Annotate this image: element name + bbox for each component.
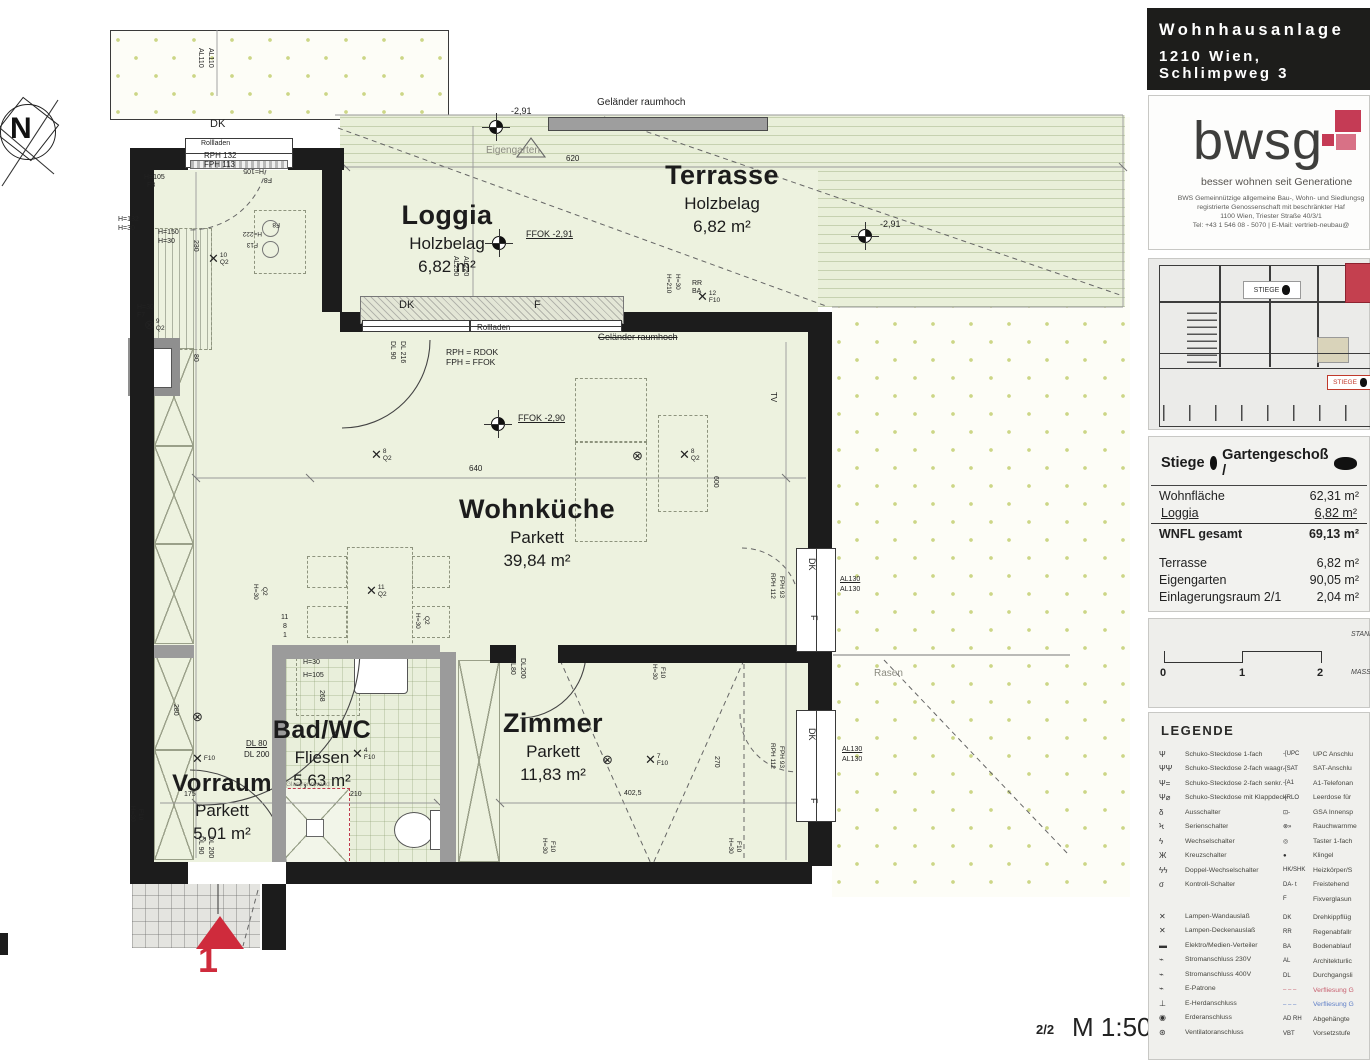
plan-annotation: 402,5 (624, 790, 642, 797)
room-material: Parkett (503, 742, 603, 762)
lamp-cross-icon: ✕7F10 (645, 753, 668, 767)
legend-symbol-icon: -[A1 (1283, 780, 1313, 786)
legend-label: Lampen-Deckenauslaß (1185, 927, 1255, 934)
scale-tick-1: 1 (1239, 667, 1245, 679)
legend-label: Rauchwarnme (1313, 823, 1357, 830)
level-marker (492, 236, 506, 250)
plan-annotation: F (809, 798, 818, 804)
legend-item: ALArchitekturlic (1283, 954, 1370, 969)
plan-annotation: H=105 (303, 672, 324, 679)
legend-symbol-icon: ϟϟ (1159, 866, 1185, 875)
legend-symbol-icon: Ψ= (1159, 779, 1185, 788)
plan-annotation: RPH = RDOK (446, 348, 498, 357)
washer-dashed (296, 658, 360, 716)
legend-label: Heizkörper/S (1313, 867, 1352, 874)
legend-symbol-icon: ● (1283, 853, 1313, 859)
plan-annotation: DL 90 (197, 836, 204, 854)
lamp-cross-icon: ✕11Q2 (366, 584, 387, 598)
lamp-cross-icon: ✕10Q2 (208, 252, 229, 266)
legend-symbol-icon: δ (1159, 808, 1185, 817)
redaction-blob (1282, 285, 1290, 295)
unit-table-rows: Wohnfläche62,31 m²Loggia6,82 m²WNFL gesa… (1149, 486, 1369, 604)
lamp-cross-icon: ✕8Q2 (371, 448, 392, 462)
legend-label: Freistehend (1313, 881, 1349, 888)
lamp-outlet-icon: ⊗9Q2 (144, 318, 165, 332)
plan-annotation: 1 (198, 942, 218, 978)
legend-label: Stromanschluss 230V (1185, 956, 1251, 963)
plan-annotation: DL 80 (246, 740, 267, 748)
legend-symbol-icon: -[UPC (1283, 751, 1313, 757)
legend-box: LEGENDE ΨSchuko-Steckdose 1-fachΨΨSchuko… (1148, 712, 1370, 1060)
bath-wall (440, 652, 456, 862)
plan-annotation: H=30 (651, 664, 658, 680)
legend-symbol-icon: ⌁ (1159, 984, 1185, 993)
legend-item: ϟϟDoppel-Wechselschalter (1159, 863, 1287, 878)
lamp-cross-icon: ✕F10 (192, 752, 215, 765)
area-table-row: WNFL gesamt69,13 m² (1149, 524, 1369, 541)
unit-table-title: Stiege Gartengeschoß / (1151, 437, 1367, 486)
wardrobe-zimmer (458, 660, 500, 862)
chair-dashed (412, 556, 450, 588)
legend-item: σKontroll-Schalter (1159, 878, 1287, 893)
area-value: 62,31 m² (1310, 489, 1359, 503)
room-name: Terrasse (665, 160, 779, 191)
legend-item: ●Klingel (1283, 849, 1370, 864)
level-marker (491, 417, 505, 431)
legend-item: RRRegenabfallr (1283, 925, 1370, 940)
plan-annotation: AL220 (462, 256, 469, 276)
legend-item: ϞSerienschalter (1159, 820, 1287, 835)
legend-item: ⌁Stromanschluss 230V (1159, 953, 1287, 968)
legend-symbol-icon: DK (1283, 915, 1313, 921)
lamp-outlet-icon: ⊗ (632, 449, 643, 462)
site-plan-thumbnail: STIEGE STIEGE (1148, 258, 1370, 430)
plan-annotation: 268 (318, 690, 325, 702)
project-title-box: Wohnhausanlage 1210 Wien, Schlimpweg 3 (1147, 8, 1370, 90)
plan-annotation: 8 (283, 623, 287, 630)
drawing-scale: M 1:50 (1072, 1012, 1152, 1043)
room-material: Holzbelag (665, 194, 779, 214)
plan-annotation: H=30 (541, 838, 548, 854)
plan-annotation: 11 (281, 614, 288, 621)
legend-item: ⊥E-Herdanschluss (1159, 996, 1287, 1011)
siteplan-line (1219, 265, 1221, 367)
plan-annotation: 620 (566, 155, 579, 163)
legend-symbol-icon: ϟ (1159, 837, 1185, 846)
plan-annotation: FPH 93 (778, 576, 785, 598)
legend-symbol-icon: Ψ (1159, 750, 1185, 759)
plan-annotation: FPH = FFOK (446, 358, 495, 367)
legend-item: -[UPCUPC Anschlu (1283, 747, 1370, 762)
plan-annotation: H=30 (252, 584, 259, 600)
room-area: 39,84 m² (459, 551, 615, 571)
legend-symbol-icon: ◎ (1283, 838, 1313, 845)
plan-annotation: F8 (147, 182, 155, 189)
legend-item: ▬Elektro/Medien-Verteiler (1159, 938, 1287, 953)
chair-dashed (307, 606, 347, 638)
legend-item: Ψ=Schuko-Steckdose 2-fach senkr. (1159, 776, 1287, 791)
legend-item: Ψ⌀Schuko-Steckdose mit Klappdeckel (1159, 791, 1287, 806)
room-name: Bad/WC (273, 716, 371, 745)
legend-symbol-icon: HK/SHK (1283, 867, 1313, 873)
stiege-label: STIEGE (1243, 281, 1301, 299)
legend-label: Stromanschluss 400V (1185, 971, 1251, 978)
bwsg-logo-box: bwsg besser wohnen seit Generatione BWS … (1148, 95, 1370, 250)
legend-label: Serienschalter (1185, 823, 1228, 830)
scale-bar-segment (1243, 651, 1322, 663)
plan-annotation: 230 (192, 240, 199, 252)
project-name: Wohnhausanlage (1159, 21, 1370, 40)
window-dk-loggia (362, 320, 470, 332)
plan-annotation: RPH 132 (204, 152, 236, 160)
plan-annotation: F8 (272, 221, 280, 228)
closet (154, 544, 194, 644)
plan-annotation: Glastrennwand (286, 782, 330, 789)
legend-item: -[RLOLeerdose für (1283, 791, 1370, 806)
area-table-row: Loggia6,82 m² (1151, 503, 1367, 524)
plan-annotation: AL250 (452, 256, 459, 276)
area-label: Eigengarten (1159, 573, 1226, 587)
logo-tagline: besser wohnen seit Generatione (1201, 176, 1352, 188)
plan-annotation: Eigengarten (486, 146, 540, 156)
partition-wall (154, 645, 194, 658)
legend-item: ⌁Stromanschluss 400V (1159, 967, 1287, 982)
plan-annotation: Geländer raumhoch (598, 333, 678, 342)
plan-annotation: 80 (192, 354, 199, 362)
scale-tick-2: 2 (1317, 667, 1323, 679)
company-address-line: registrierte Genossenschaft mit beschrän… (1149, 204, 1370, 211)
area-table-row: Terrasse6,82 m² (1149, 553, 1369, 570)
plan-annotation: 640 (469, 465, 482, 473)
legend-item: DLDurchgangsli (1283, 969, 1370, 984)
stand-label: STAND (1351, 631, 1370, 638)
bath-wall (272, 645, 440, 659)
legend-label: Schuko-Steckdose 2-fach senkr. (1185, 780, 1282, 787)
room-area: 11,83 m² (503, 765, 603, 785)
legend-item: -[A1A1-Telefonan (1283, 776, 1370, 791)
legend-label: Leerdose für (1313, 794, 1351, 801)
legend-symbol-icon: σ (1159, 880, 1185, 889)
room-name: Zimmer (503, 708, 603, 739)
closet (154, 652, 194, 750)
company-address-line: 1100 Wien, Triester Straße 40/3/1 (1149, 213, 1370, 220)
legend-label: Klingel (1313, 852, 1333, 859)
legend-symbol-icon: BA (1283, 944, 1313, 950)
legend-column-right: -[UPCUPC Anschlu-[SATSAT-Anschlu-[A1A1-T… (1283, 747, 1370, 1041)
room-material: Holzbelag (402, 234, 493, 254)
legend-item: ✕Lampen-Deckenauslaß (1159, 924, 1287, 939)
plan-annotation: TV (769, 392, 777, 402)
wall (620, 312, 812, 332)
lamp-outlet-icon: ⊗ (602, 753, 613, 766)
room-name: Wohnküche (459, 494, 615, 525)
plan-annotation: F10 (659, 667, 666, 678)
stiege-label-red: STIEGE (1327, 375, 1370, 390)
legend-symbol-icon: Ψ⌀ (1159, 793, 1185, 802)
wall (558, 645, 812, 663)
plan-annotation: H=30 (118, 225, 135, 232)
legend-label: Ventilatoranschluss (1185, 1029, 1244, 1036)
page-number: 2/2 (1036, 1022, 1054, 1037)
lamp-outlet-icon: ⊗ (192, 710, 203, 723)
room-label-wohnkche: WohnkücheParkett39,84 m² (459, 494, 615, 571)
scale-bar-segment (1164, 651, 1243, 663)
wall (262, 884, 286, 950)
plan-annotation: F10 (735, 841, 742, 852)
wall (130, 148, 154, 864)
table-title-stiege: Stiege (1161, 455, 1205, 471)
logo-square-icon (1322, 134, 1334, 146)
room-area: 6,82 m² (665, 217, 779, 237)
wall (130, 862, 188, 884)
eigengarten-grass-top (110, 30, 449, 120)
area-label: Terrasse (1159, 556, 1207, 570)
redaction-blob (1210, 456, 1218, 470)
plan-annotation: H=30 (727, 838, 734, 854)
legend-label: GSA Innensp (1313, 809, 1353, 816)
legend-symbol-icon: Ж (1159, 851, 1185, 860)
legend-label: Taster 1-fach (1313, 838, 1352, 845)
legend-item: ΨΨSchuko-Steckdose 2-fach waagr. (1159, 762, 1287, 777)
plan-annotation: DL200 (519, 658, 526, 679)
wall (808, 820, 832, 866)
plan-annotation: -2,91 (511, 107, 532, 116)
legend-symbol-icon: F (1283, 896, 1313, 902)
legend-symbol-icon: -[SAT (1283, 766, 1313, 772)
area-value: 69,13 m² (1309, 527, 1359, 541)
legend-item: ⊛Ventilatoranschluss (1159, 1025, 1287, 1040)
legend-item: HK/SHKHeizkörper/S (1283, 863, 1370, 878)
plan-annotation: DK (399, 300, 414, 311)
plan-annotation: F13 (247, 241, 258, 248)
plan-annotation: DK (210, 119, 225, 130)
company-address-line: BWS Gemeinnützige allgemeine Bau-, Wohn-… (1149, 195, 1370, 202)
room-label-loggia: LoggiaHolzbelag6,82 m² (402, 200, 493, 277)
plan-annotation: F (534, 300, 541, 311)
plan-annotation: AL130 (842, 746, 862, 753)
siteplan-line (1159, 301, 1370, 303)
scale-bar-box: 0 1 2 STAND MASS (1148, 618, 1370, 708)
legend-item: VBTVorsetzstufe (1283, 1027, 1370, 1042)
area-value: 90,05 m² (1310, 573, 1359, 587)
chair-dashed (307, 556, 347, 588)
plan-annotation: RPH 112 (769, 573, 776, 599)
legend-item: DA- tFreistehend (1283, 878, 1370, 893)
plan-annotation: 175 (184, 791, 196, 798)
legend-symbol-icon: – – – (1283, 1002, 1313, 1008)
plan-annotation: DL 200 (207, 836, 214, 858)
legend-item: ⌁E-Patrone (1159, 982, 1287, 997)
plan-annotation: RR (692, 280, 702, 287)
legend-symbol-icon: RR (1283, 929, 1313, 935)
area-label: Loggia (1161, 506, 1199, 520)
room-label-zimmer: ZimmerParkett11,83 m² (503, 708, 603, 785)
legend-symbol-icon: ◉ (1159, 1013, 1185, 1022)
logo-square-icon (1335, 110, 1361, 132)
scan-artifact (0, 933, 8, 955)
legend-symbol-icon: AL (1283, 958, 1313, 964)
plan-annotation: F (809, 615, 818, 621)
plan-annotation: 1 (283, 632, 287, 639)
plan-annotation: Q2 (423, 616, 430, 625)
legend-label: Vorsetzstufe (1313, 1030, 1350, 1037)
legend-label: Verfliesung G (1313, 987, 1354, 994)
kitchen-counter-dashed (658, 415, 708, 512)
company-address-line: Tel: +43 1 546 08 - 5070 | E-Mail: vertr… (1149, 222, 1370, 229)
legend-symbol-icon: ⊛ (1159, 1028, 1185, 1037)
toilet (394, 812, 434, 848)
legend-item: ЖKreuzschalter (1159, 849, 1287, 864)
redaction-blob (1360, 378, 1367, 387)
plan-annotation: RPH 112 (769, 743, 776, 769)
area-value: 6,82 m² (1315, 506, 1357, 520)
legend-label: Abgehängte (1313, 1016, 1350, 1023)
bwsg-logo-text: bwsg (1193, 110, 1323, 172)
plan-annotation: Rollladen (477, 324, 510, 332)
plan-annotation: 210 (350, 791, 362, 798)
legend-item: -[SATSAT-Anschlu (1283, 762, 1370, 777)
plan-annotation: H=30 (674, 274, 681, 290)
legend-label: Drehkippflüg (1313, 914, 1351, 921)
legend-label: Lampen-Wandauslaß (1185, 913, 1250, 920)
legend-symbol-icon: ⊥ (1159, 999, 1185, 1008)
legend-symbol-icon: ⊗» (1283, 823, 1313, 830)
level-marker (858, 229, 872, 243)
plan-annotation: H=105 (243, 167, 264, 174)
wall (286, 862, 812, 884)
legend-item: ◉Erderanschluss (1159, 1011, 1287, 1026)
plan-annotation: AL130 (842, 756, 862, 763)
plan-annotation: AL130 (840, 576, 860, 583)
plan-annotation: FFOK -2,91 (526, 230, 573, 239)
legend-symbol-icon: Ϟ (1159, 822, 1185, 831)
legend-label: E-Herdanschluss (1185, 1000, 1237, 1007)
lamp-cross-icon: ✕12F10 (697, 290, 720, 304)
lamp-cross-icon: ✕8Q2 (679, 448, 700, 462)
legend-label: A1-Telefonan (1313, 780, 1353, 787)
legend-item: FFixverglasun (1283, 892, 1370, 907)
legend-label: UPC Anschlu (1313, 751, 1353, 758)
plan-annotation: H=30 (137, 304, 154, 311)
legend-symbol-icon: ΨΨ (1159, 764, 1185, 773)
legend-label: Wechselschalter (1185, 838, 1235, 845)
parking-ticks (1163, 405, 1368, 421)
legend-label: Kontroll-Schalter (1185, 881, 1235, 888)
plan-annotation: F10 (137, 809, 144, 820)
legend-label: Schuko-Steckdose mit Klappdeckel (1185, 794, 1287, 801)
legend-item: ✕Lampen-Wandauslaß (1159, 909, 1287, 924)
closet (154, 446, 194, 544)
legend-item: δAusschalter (1159, 805, 1287, 820)
plan-annotation: 280 (172, 704, 179, 716)
room-material: Parkett (459, 528, 615, 548)
cooktop-ring (262, 241, 279, 258)
plan-annotation: AL130 (840, 586, 860, 593)
window-east-lower (796, 710, 836, 822)
plan-annotation: Rollladen (201, 140, 230, 147)
area-label: Wohnfläche (1159, 489, 1225, 503)
plan-annotation: H=222 (243, 230, 262, 237)
room-area: 5,01 m² (172, 824, 272, 844)
plan-annotation: DL 200 (244, 751, 270, 759)
scale-tick-0: 0 (1160, 667, 1166, 679)
legend-label: Schuko-Steckdose 2-fach waagr. (1185, 765, 1284, 772)
legend-item: ⊡-GSA Innensp (1283, 805, 1370, 820)
room-label-terrasse: TerrasseHolzbelag6,82 m² (665, 160, 779, 237)
legend-label: E-Patrone (1185, 985, 1216, 992)
area-value: 2,04 m² (1317, 590, 1359, 604)
stiege-label-text: STIEGE (1254, 287, 1280, 294)
lamp-cross-icon: ✕4F10 (352, 747, 375, 761)
legend-item: BABodenablauf (1283, 940, 1370, 955)
legend-label: Erderanschluss (1185, 1014, 1232, 1021)
legend-symbol-icon: ⊡- (1283, 809, 1313, 816)
legend-symbol-icon: – – – (1283, 987, 1313, 993)
legend-symbol-icon: ⌁ (1159, 955, 1185, 964)
redaction-blob (1334, 457, 1357, 470)
wall (322, 150, 342, 312)
wall (808, 312, 832, 548)
legend-item: ◎Taster 1-fach (1283, 834, 1370, 849)
stiege-label-text: STIEGE (1333, 379, 1357, 386)
plan-annotation: AL110 (207, 48, 214, 68)
room-area: 6,82 m² (402, 257, 493, 277)
terrace-railing (548, 117, 768, 131)
level-marker (489, 120, 503, 134)
legend-label: Verfliesung G (1313, 1001, 1354, 1008)
plan-annotation: AL110 (197, 48, 204, 68)
legend-label: Fixverglasun (1313, 896, 1352, 903)
room-label-vorraum: VorraumParkett5,01 m² (172, 770, 272, 844)
area-label: WNFL gesamt (1159, 527, 1242, 541)
plan-annotation: 270 (713, 756, 720, 768)
legend-symbol-icon: ▬ (1159, 941, 1185, 950)
entrance-door-gap (190, 862, 286, 884)
plan-annotation: F10 (549, 841, 556, 852)
plan-annotation: H=132 (118, 216, 139, 223)
legend-symbol-icon: AD RH (1283, 1016, 1313, 1022)
scanned-floor-plan-sheet: N LoggiaHolzbelag6,82 m²TerrasseHolzbela… (0, 0, 1370, 1060)
legend-label: Schuko-Steckdose 1-fach (1185, 751, 1262, 758)
table-title-floor: Gartengeschoß / (1222, 447, 1328, 479)
area-label: Einlagerungsraum 2/1 (1159, 590, 1281, 604)
legend-item: – – –Verfliesung G (1283, 998, 1370, 1013)
plan-annotation: H=30 (158, 238, 175, 245)
plan-annotation: DL80 (509, 658, 516, 675)
legend-label: Bodenablauf (1313, 943, 1351, 950)
legend-label: SAT-Anschlu (1313, 765, 1352, 772)
plan-annotation: DK (807, 728, 816, 741)
plan-annotation: F8 (264, 176, 272, 183)
project-address: 1210 Wien, Schlimpweg 3 (1159, 48, 1370, 82)
logo-square-icon (1336, 134, 1356, 150)
kitchen-island-dashed (575, 378, 647, 442)
plan-annotation: H=150 (158, 229, 179, 236)
room-name: Loggia (402, 200, 493, 231)
area-table-row: Eigengarten90,05 m² (1149, 570, 1369, 587)
area-table-row: Wohnfläche62,31 m² (1149, 486, 1369, 503)
plan-annotation: FFOK -2,90 (518, 414, 565, 423)
legend-label: Ausschalter (1185, 809, 1221, 816)
legend-symbol-icon: ⌁ (1159, 970, 1185, 979)
legend-label: Elektro/Medien-Verteiler (1185, 942, 1258, 949)
legend-label: Durchgangsli (1313, 972, 1353, 979)
plan-annotation: DL 90 (389, 341, 396, 359)
legend-item: DKDrehkippflüg (1283, 911, 1370, 926)
plan-annotation: DL 216 (399, 341, 406, 363)
plan-annotation: Geländer raumhoch (597, 98, 685, 108)
washbasin (354, 654, 408, 694)
